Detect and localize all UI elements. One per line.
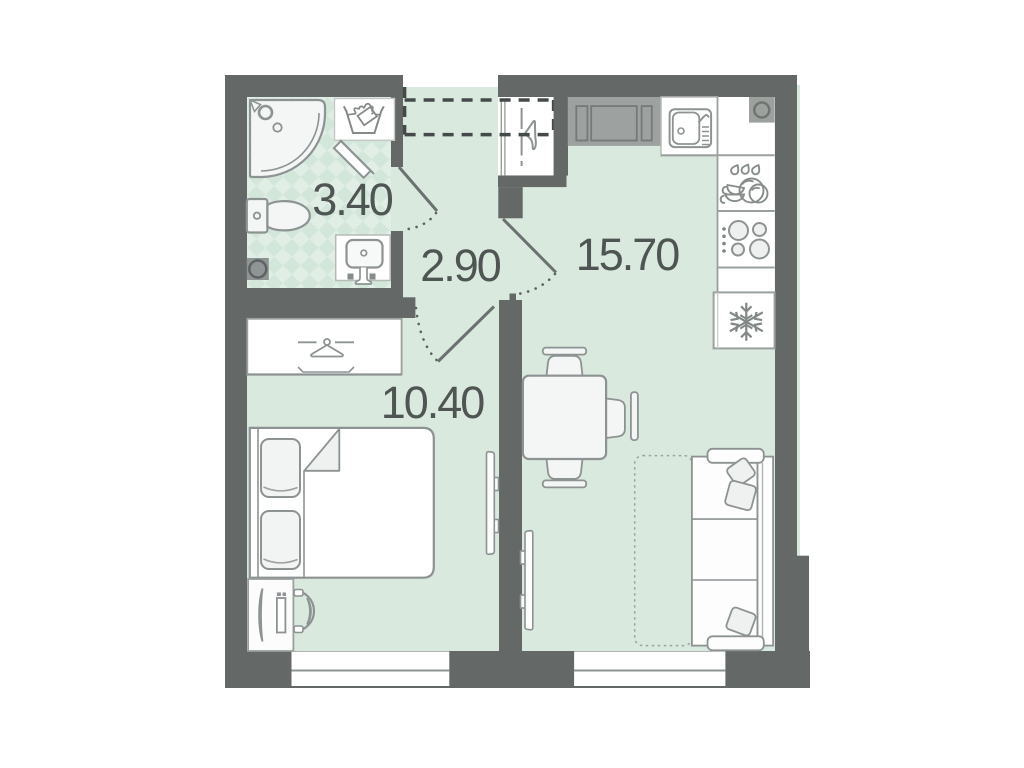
svg-text:15.70: 15.70: [576, 229, 680, 280]
svg-text:10.40: 10.40: [381, 377, 485, 428]
svg-text:3.40: 3.40: [312, 174, 393, 225]
svg-text:2.90: 2.90: [420, 240, 501, 291]
